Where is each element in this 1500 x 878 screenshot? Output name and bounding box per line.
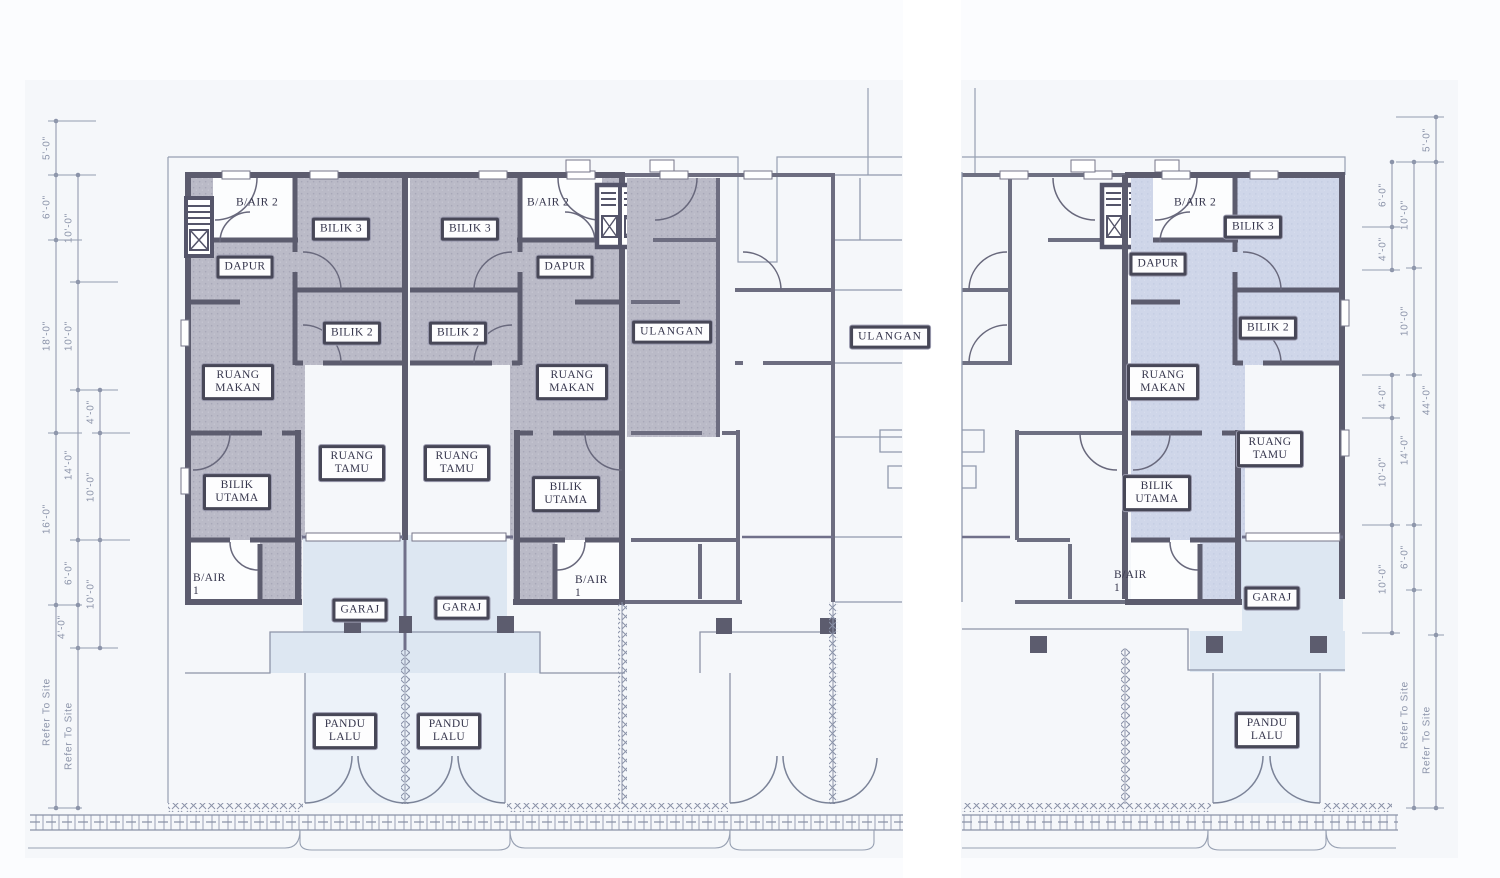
room-label-bedroom3-unit2: BILIK 3	[441, 218, 499, 241]
dim-left-middle-refer: Refer To Site	[64, 702, 75, 770]
dim-left-inner-1: 10'-0"	[86, 472, 97, 502]
room-label-living-unit6: RUANG TAMU	[1237, 431, 1303, 467]
dim-left-middle-2: 14'-0"	[64, 450, 75, 480]
dim-right-middle-0: 10'-0"	[1400, 200, 1411, 230]
dim-left-middle-0: 10'-0"	[64, 213, 75, 243]
room-label-dining-unit6: RUANG MAKAN	[1127, 364, 1199, 400]
room-label-bathroom1-unit6: B/AIR 1	[1114, 569, 1156, 595]
room-label-bedroom2-unit6: BILIK 2	[1239, 317, 1297, 340]
room-label-bedroom3-unit1: BILIK 3	[312, 218, 370, 241]
room-label-driveway-unit1: PANDU LALU	[313, 713, 377, 749]
dim-left-inner-0: 4'-0"	[86, 400, 97, 424]
dim-left-outer-3: 16'-0"	[42, 504, 53, 534]
shaft-x-symbol	[186, 198, 212, 256]
sheet-break-band	[903, 0, 961, 878]
room-label-bedroom2-unit1: BILIK 2	[323, 322, 381, 345]
room-label-kitchen-unit2: DAPUR	[537, 256, 594, 279]
room-label-garage-unit6: GARAJ	[1244, 587, 1299, 610]
room-label-driveway-unit2: PANDU LALU	[417, 713, 481, 749]
room-label-garage-unit1: GARAJ	[332, 599, 387, 622]
dim-right-outer-refer: Refer To Site	[1422, 706, 1433, 774]
repeat-label-unit3: ULANGAN	[632, 321, 712, 344]
dim-left-outer-0: 5'-0"	[42, 136, 53, 160]
dim-right-middle-3: 6'-0"	[1400, 545, 1411, 569]
room-label-master-bedroom-unit2: BILIK UTAMA	[532, 476, 600, 512]
room-label-master-bedroom-unit1: BILIK UTAMA	[203, 474, 271, 510]
dim-right-inner-2: 4'-0"	[1378, 385, 1389, 409]
dim-left-middle-3: 6'-0"	[64, 561, 75, 585]
room-label-bedroom2-unit2: BILIK 2	[429, 322, 487, 345]
dim-right-middle-refer: Refer To Site	[1400, 681, 1411, 749]
room-label-living-unit1: RUANG TAMU	[319, 445, 385, 481]
room-label-kitchen-unit6: DAPUR	[1130, 253, 1187, 276]
room-label-driveway-unit6: PANDU LALU	[1235, 712, 1299, 748]
dim-right-middle-1: 10'-0"	[1400, 306, 1411, 336]
room-label-bathroom2-unit2: B/AIR 2	[527, 197, 571, 210]
room-label-dining-unit2: RUANG MAKAN	[536, 364, 608, 400]
room-label-bathroom1-unit2: B/AIR 1	[575, 574, 617, 600]
room-label-master-bedroom-unit6: BILIK UTAMA	[1123, 475, 1191, 511]
dim-left-outer-refer: Refer To Site	[42, 678, 53, 746]
room-label-bathroom2-unit6: B/AIR 2	[1174, 197, 1218, 210]
room-label-bedroom3-unit6: BILIK 3	[1224, 216, 1282, 239]
floor-plan-sheet: B/AIR 2 BILIK 3 DAPUR BILIK 2 RUANG MAKA…	[0, 0, 1500, 878]
room-label-living-unit2: RUANG TAMU	[424, 445, 490, 481]
room-label-dining-unit1: RUANG MAKAN	[202, 364, 274, 400]
dim-right-outer-0: 5'-0"	[1422, 128, 1433, 152]
room-label-garage-unit2: GARAJ	[434, 597, 489, 620]
dim-right-inner-0: 6'-0"	[1378, 183, 1389, 207]
dim-right-inner-4: 10'-0"	[1378, 564, 1389, 594]
dim-right-inner-1: 4'-0"	[1378, 237, 1389, 261]
dim-left-inner-2: 10'-0"	[86, 579, 97, 609]
room-label-kitchen-unit1: DAPUR	[217, 256, 274, 279]
dim-left-outer-1: 6'-0"	[42, 195, 53, 219]
room-label-bathroom1-unit1: B/AIR 1	[193, 572, 235, 598]
dim-right-outer-1: 44'-0"	[1422, 385, 1433, 415]
dim-right-middle-2: 14'-0"	[1400, 435, 1411, 465]
dim-left-outer-2: 18'-0"	[42, 321, 53, 351]
dim-left-middle-1: 10'-0"	[64, 321, 75, 351]
dim-left-middle-4: 4'-0"	[57, 615, 68, 639]
repeat-label-unit4: ULANGAN	[850, 326, 930, 349]
room-label-bathroom2-unit1: B/AIR 2	[236, 197, 280, 210]
dim-right-inner-3: 10'-0"	[1378, 457, 1389, 487]
